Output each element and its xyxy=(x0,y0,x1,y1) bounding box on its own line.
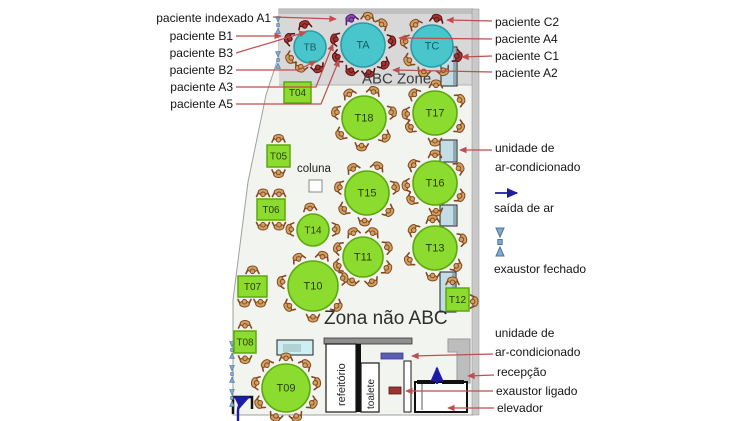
non-abc-zone-label: Zona não ABC xyxy=(324,308,448,330)
legend-label: saída de ar xyxy=(494,201,554,215)
legend-label: ar-condicionado xyxy=(495,345,580,359)
ac-unit-bar xyxy=(381,353,403,359)
patient-label: paciente B2 xyxy=(170,63,233,77)
legend-label: unidade de xyxy=(495,326,554,340)
table-label: T08 xyxy=(236,338,254,349)
table-label: T10 xyxy=(304,281,323,293)
table-T11: T11 xyxy=(343,237,383,277)
legend-label: elevador xyxy=(497,401,543,415)
table-label: T17 xyxy=(426,108,445,120)
table-label: T14 xyxy=(304,226,322,237)
legend-label: exaustor ligado xyxy=(496,384,577,398)
table-TA: TA xyxy=(341,23,385,67)
table-T10: T10 xyxy=(288,261,338,311)
patient-label: paciente A2 xyxy=(495,66,558,80)
table-T04: T04 xyxy=(284,82,311,103)
abc-zone-label: ABC Zone xyxy=(362,71,431,88)
patient-label: paciente B1 xyxy=(170,29,233,43)
legend-label: exaustor fechado xyxy=(494,262,586,276)
patient-label: paciente B3 xyxy=(170,46,233,60)
patient-label: paciente C1 xyxy=(495,49,559,63)
column-label: coluna xyxy=(297,163,331,175)
top-wall xyxy=(279,9,473,14)
table-T15: T15 xyxy=(345,171,389,215)
table-label: T04 xyxy=(289,88,307,99)
legend-label: ar-condicionado xyxy=(495,160,580,174)
table-T17: T17 xyxy=(413,91,457,135)
table-T13: T13 xyxy=(413,226,457,270)
table-T08: T08 xyxy=(234,331,256,353)
table-label: T05 xyxy=(270,152,288,163)
column xyxy=(309,180,322,192)
table-label: T06 xyxy=(262,205,280,216)
restaurant-floorplan-figure: refeitóriotoaleteTBTATCT18T17T15T16T14T1… xyxy=(0,0,750,421)
table-T05: T05 xyxy=(267,145,290,167)
closed-exhaust-legend-icon xyxy=(496,228,504,256)
table-label: TA xyxy=(356,40,370,52)
patient-label: paciente A4 xyxy=(495,32,558,46)
table-label: T09 xyxy=(277,383,296,395)
exhaust-on-unit xyxy=(389,387,401,394)
table-label: T16 xyxy=(426,178,445,190)
toilet-label: toalete xyxy=(366,379,377,409)
wall-column xyxy=(404,361,411,412)
table-T18: T18 xyxy=(342,96,386,140)
patient-label: paciente indexado A1 xyxy=(156,11,271,25)
table-T16: T16 xyxy=(413,161,457,205)
table-label: T13 xyxy=(426,243,445,255)
table-T09: T09 xyxy=(262,364,310,412)
table-TB: TB xyxy=(294,31,326,63)
table-label: T15 xyxy=(358,188,377,200)
floor-plan: refeitóriotoaleteTBTATCT18T17T15T16T14T1… xyxy=(0,0,750,421)
patient-label: paciente C2 xyxy=(495,15,559,29)
table-label: T12 xyxy=(449,295,467,306)
table-label: T18 xyxy=(355,113,374,125)
cafeteria-wall xyxy=(324,338,412,344)
cafeteria-label: refeitório xyxy=(336,363,348,406)
legend-label: recepção xyxy=(497,365,546,379)
table-T14: T14 xyxy=(297,214,329,246)
table-TC: TC xyxy=(411,25,453,67)
legend-label: unidade de xyxy=(495,141,554,155)
table-T07: T07 xyxy=(238,276,267,297)
table-label: TB xyxy=(304,43,317,54)
table-T06: T06 xyxy=(257,199,285,220)
patient-label: paciente A5 xyxy=(170,97,233,111)
table-label: TC xyxy=(425,41,440,53)
patient-label: paciente A3 xyxy=(170,80,233,94)
table-label: T11 xyxy=(354,252,372,264)
table-T12: T12 xyxy=(446,288,469,311)
table-label: T07 xyxy=(244,282,262,293)
